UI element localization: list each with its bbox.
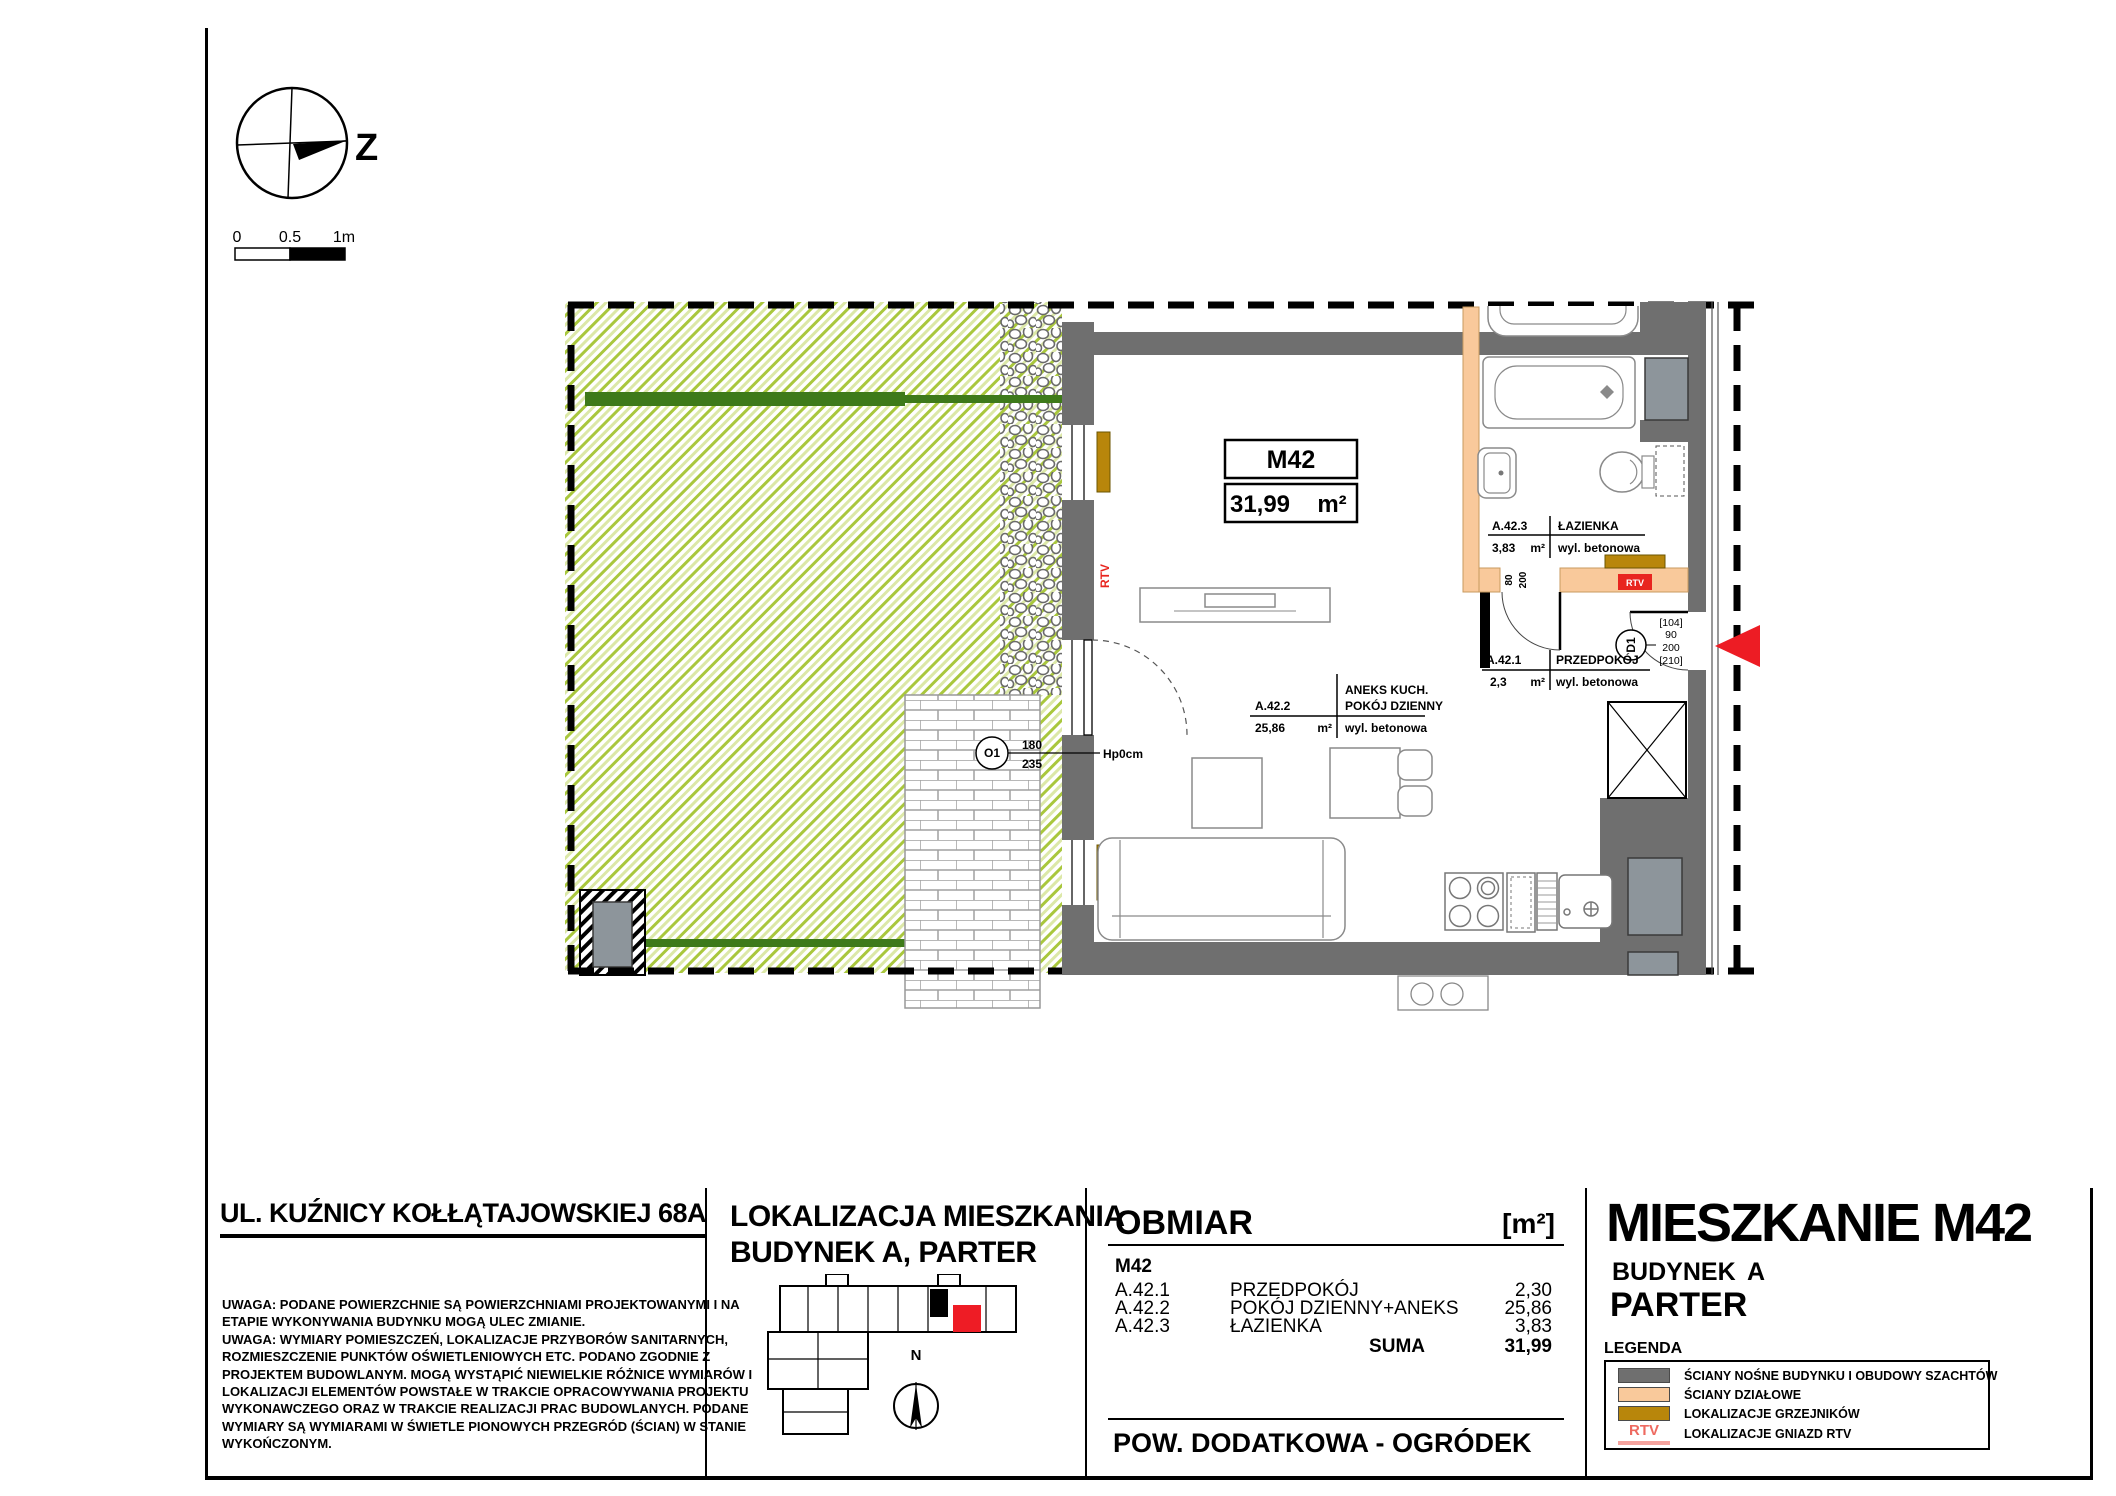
shaft-hall: [1628, 858, 1682, 935]
legend-swatch-partition: [1618, 1387, 1670, 1402]
divider-obmiar: [1585, 1188, 1587, 1478]
svg-text:25,86: 25,86: [1255, 721, 1285, 735]
note-line: WYMIARY SĄ WYMIARAMI W ŚWIETLE PIONOWYCH…: [222, 1418, 752, 1435]
svg-text:POKÓJ DZIENNY: POKÓJ DZIENNY: [1345, 698, 1443, 713]
minimap-core: [930, 1289, 948, 1317]
obmiar-row-code: A.42.3: [1115, 1316, 1170, 1338]
bathroom-door-swing: [1502, 592, 1560, 650]
note-line: UWAGA: WYMIARY POMIESZCZEŃ, LOKALIZACJE …: [222, 1331, 752, 1348]
gravel-band: [1000, 302, 1062, 695]
note-line: PROJEKTEM BUDOWLANYM. MOGĄ WYSTĄPIĆ NIEW…: [222, 1366, 752, 1383]
note-line: WYKONAWCZEGO ORAZ W TRAKCIE REALIZACJI P…: [222, 1400, 752, 1417]
garden-shed-box: [580, 890, 645, 975]
floor-label: PARTER: [1610, 1286, 1747, 1325]
svg-text:m²: m²: [1530, 675, 1545, 689]
coffee-table: [1192, 758, 1262, 828]
rtv-socket-hall: RTV: [1618, 574, 1652, 590]
hedge-bottom: [645, 939, 905, 947]
svg-text:wyl. betonowa: wyl. betonowa: [1344, 721, 1427, 735]
svg-text:RTV: RTV: [1626, 578, 1644, 588]
chair: [1398, 750, 1432, 780]
unit-label: M42 31,99 m²: [1225, 440, 1357, 522]
note-line: ETAPIE WYKONYWANIA BUDYNKU MOGĄ ULEC ZMI…: [222, 1313, 752, 1330]
living-furniture: [1098, 588, 1432, 940]
shaft-below: [1628, 952, 1678, 975]
obmiar-footer-rule: [1108, 1418, 1564, 1420]
building-value: A: [1747, 1258, 1765, 1287]
north-label: N: [911, 1347, 922, 1364]
svg-text:m²: m²: [1530, 541, 1545, 555]
bath-door-width: 80: [1504, 574, 1515, 586]
minimap-compass-north: N: [876, 1344, 956, 1449]
svg-text:m²: m²: [1317, 721, 1332, 735]
unit-code: M42: [1267, 446, 1316, 474]
window-living-bottom: [1062, 840, 1094, 905]
legend-row-walls: ŚCIANY NOŚNE BUDYNKU I OBUDOWY SZACHTÓW: [1618, 1366, 1988, 1385]
obmiar-group: M42: [1115, 1256, 1152, 1278]
street-address: UL. KUŹNICY KOŁŁĄTAJOWSKIEJ 68A: [220, 1198, 706, 1238]
additional-area-note: POW. DODATKOWA - OGRÓDEK: [1113, 1428, 1532, 1459]
o1-width: 180: [1022, 738, 1042, 752]
note-line: WYKOŃCZONYM.: [222, 1435, 752, 1452]
neighbour-hob: [1398, 976, 1488, 1010]
hob: [1445, 873, 1503, 930]
legend-swatch-radiator: [1618, 1406, 1670, 1421]
note-line: LOKALIZACJI ELEMENTÓW POWSTAŁE W TRAKCIE…: [222, 1383, 752, 1400]
svg-text:PRZEDPOKÓJ: PRZEDPOKÓJ: [1556, 652, 1639, 667]
chair: [1398, 786, 1432, 816]
wardrobe: [1608, 702, 1686, 798]
floor-plan: RTV RTV 80 200: [560, 280, 1780, 1035]
compass-west: Z: [215, 60, 425, 240]
obmiar-unit: [m²]: [1400, 1208, 1555, 1240]
balcony-door-swing: [1092, 640, 1187, 735]
svg-text:A.42.3: A.42.3: [1492, 519, 1528, 533]
svg-text:2,3: 2,3: [1490, 675, 1507, 689]
bathroom-cabinet: [1656, 446, 1684, 496]
svg-text:A.42.2: A.42.2: [1255, 699, 1291, 713]
note-line: ROZMIESZCZENIE PUNKTÓW OŚWIETLENIOWYCH E…: [222, 1348, 752, 1365]
obmiar-row-value: 3,83: [1432, 1316, 1552, 1338]
scale-tick-05: 0.5: [279, 229, 301, 246]
entry-dim-4: [210]: [1659, 655, 1682, 667]
notes-block: UWAGA: PODANE POWIERZCHNIE SĄ POWIERZCHN…: [222, 1296, 752, 1453]
room-label-hall: A.42.1 PRZEDPOKÓJ 2,3 m² wyl. betonowa: [1482, 650, 1650, 690]
garden-area: [565, 302, 1062, 1008]
svg-text:O1: O1: [984, 746, 1000, 760]
compass-direction-label: Z: [355, 127, 378, 169]
building-label: BUDYNEK: [1612, 1258, 1736, 1287]
scale-tick-1m: 1m: [333, 229, 355, 246]
rtv-socket-living: RTV: [1098, 564, 1112, 588]
scale-bar: 0 0.5 1m: [220, 224, 400, 268]
svg-text:ANEKS KUCH.: ANEKS KUCH.: [1345, 683, 1428, 697]
unit-area: 31,99: [1230, 491, 1290, 518]
room-label-bathroom: A.42.3 ŁAZIENKA 3,83 m² wyl. betonowa: [1488, 516, 1645, 558]
shaft-bathroom: [1645, 358, 1688, 420]
entry-dim-3: 200: [1662, 642, 1680, 654]
radiator-living-top: [1097, 432, 1110, 492]
entry-dim-1: [104]: [1659, 617, 1682, 629]
legend-row-partitions: ŚCIANY DZIAŁOWE: [1618, 1385, 1988, 1404]
room-label-living: A.42.2 ANEKS KUCH. POKÓJ DZIENNY 25,86 m…: [1250, 674, 1443, 738]
radiator-bathroom: [1605, 555, 1665, 568]
note-line: UWAGA: PODANE POWIERZCHNIE SĄ POWIERZCHN…: [222, 1296, 752, 1313]
kitchen-appliances: [1445, 873, 1612, 932]
entry-dim-2: 90: [1665, 629, 1677, 641]
legend-row-rtv: RTV LOKALIZACJE GNIAZD RTV: [1618, 1423, 1988, 1444]
svg-text:A.42.1: A.42.1: [1486, 653, 1522, 667]
legend-title: LEGENDA: [1604, 1340, 1682, 1358]
neighbour-bathtub: [1488, 280, 1638, 336]
o1-sill-note: Hp0cm: [1103, 747, 1143, 761]
unit-highlight: [953, 1305, 981, 1332]
svg-text:D1: D1: [1624, 637, 1638, 653]
obmiar-header-rule: [1108, 1244, 1564, 1246]
svg-text:3,83: 3,83: [1492, 541, 1516, 555]
svg-text:wyl. betonowa: wyl. betonowa: [1557, 541, 1640, 555]
unit-area-unit: m²: [1317, 491, 1346, 518]
scale-tick-0: 0: [233, 229, 242, 246]
kitchen-sink: [1559, 875, 1612, 928]
sheet-frame-left: [205, 28, 208, 1480]
svg-text:wyl. betonowa: wyl. betonowa: [1555, 675, 1638, 689]
location-title-line2: BUDYNEK A, PARTER: [730, 1236, 1037, 1270]
location-title-line1: LOKALIZACJA MIESZKANIA: [730, 1200, 1125, 1234]
dining-table: [1330, 748, 1400, 818]
apartment-title: MIESZKANIE M42: [1606, 1192, 2096, 1254]
obmiar-suma-label: SUMA: [1300, 1336, 1425, 1358]
balcony-door-leaf: [1084, 640, 1092, 735]
obmiar-title: OBMIAR: [1115, 1204, 1253, 1243]
o1-height: 235: [1022, 757, 1042, 771]
svg-text:ŁAZIENKA: ŁAZIENKA: [1558, 519, 1619, 533]
legend-swatch-rtv: RTV: [1618, 1423, 1670, 1445]
obmiar-row-name: ŁAZIENKA: [1230, 1316, 1322, 1338]
obmiar-suma-value: 31,99: [1432, 1336, 1552, 1358]
bath-door-height: 200: [1518, 571, 1529, 588]
legend-row-radiators: LOKALIZACJE GRZEJNIKÓW: [1618, 1404, 1988, 1423]
window-living-top: [1062, 425, 1094, 500]
toilet: [1600, 452, 1644, 492]
legend: ŚCIANY NOŚNE BUDYNKU I OBUDOWY SZACHTÓW …: [1604, 1360, 1990, 1450]
terrace-paving: [905, 695, 1040, 1008]
sofa: [1098, 838, 1345, 940]
sheet-frame-bottom: [205, 1476, 2093, 1480]
legend-swatch-load-bearing: [1618, 1368, 1670, 1383]
tv: [1205, 594, 1275, 607]
